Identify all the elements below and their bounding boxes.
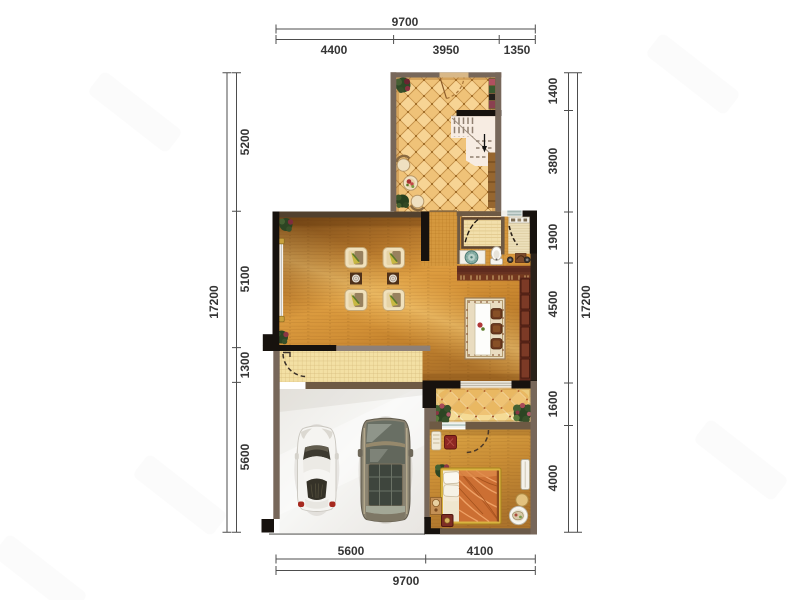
svg-text:9700: 9700 bbox=[392, 15, 419, 29]
svg-text:4400: 4400 bbox=[321, 43, 348, 57]
svg-text:1900: 1900 bbox=[546, 223, 560, 250]
svg-text:1350: 1350 bbox=[504, 43, 531, 57]
svg-text:9700: 9700 bbox=[393, 574, 420, 588]
svg-text:4500: 4500 bbox=[546, 290, 560, 317]
svg-text:4000: 4000 bbox=[546, 464, 560, 491]
svg-text:5600: 5600 bbox=[338, 544, 365, 558]
svg-text:1400: 1400 bbox=[546, 77, 560, 104]
svg-text:4100: 4100 bbox=[467, 544, 494, 558]
svg-text:3800: 3800 bbox=[546, 147, 560, 174]
svg-text:5100: 5100 bbox=[238, 265, 252, 292]
svg-text:1300: 1300 bbox=[238, 351, 252, 378]
svg-text:17200: 17200 bbox=[579, 285, 593, 319]
svg-text:5200: 5200 bbox=[238, 128, 252, 155]
svg-text:1600: 1600 bbox=[546, 390, 560, 417]
svg-text:5600: 5600 bbox=[238, 443, 252, 470]
svg-text:17200: 17200 bbox=[207, 285, 221, 319]
svg-text:3950: 3950 bbox=[433, 43, 460, 57]
